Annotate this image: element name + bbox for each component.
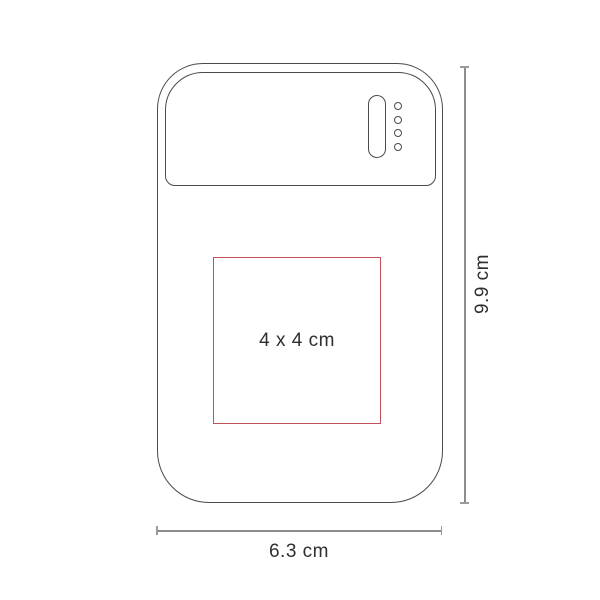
print-area-box: 4 x 4 cm <box>213 257 381 424</box>
width-dimension-label: 6.3 cm <box>269 541 329 563</box>
height-dimension-label: 9.9 cm <box>472 254 494 314</box>
dimension-diagram: 4 x 4 cm 9.9 cm 6.3 cm <box>0 0 600 600</box>
led-indicator-dot <box>394 116 402 124</box>
width-dimension-line <box>156 530 442 532</box>
height-dimension-line <box>464 67 466 503</box>
height-dimension-tick-bottom <box>460 502 469 504</box>
height-dimension-tick-top <box>460 66 469 68</box>
print-area-label: 4 x 4 cm <box>259 330 335 352</box>
led-indicator-dot <box>394 143 402 151</box>
power-button-icon <box>368 95 386 158</box>
led-indicator-dot <box>394 129 402 137</box>
led-indicator-dot <box>394 102 402 110</box>
width-dimension-tick-left <box>156 526 158 535</box>
width-dimension-tick-right <box>441 526 443 535</box>
